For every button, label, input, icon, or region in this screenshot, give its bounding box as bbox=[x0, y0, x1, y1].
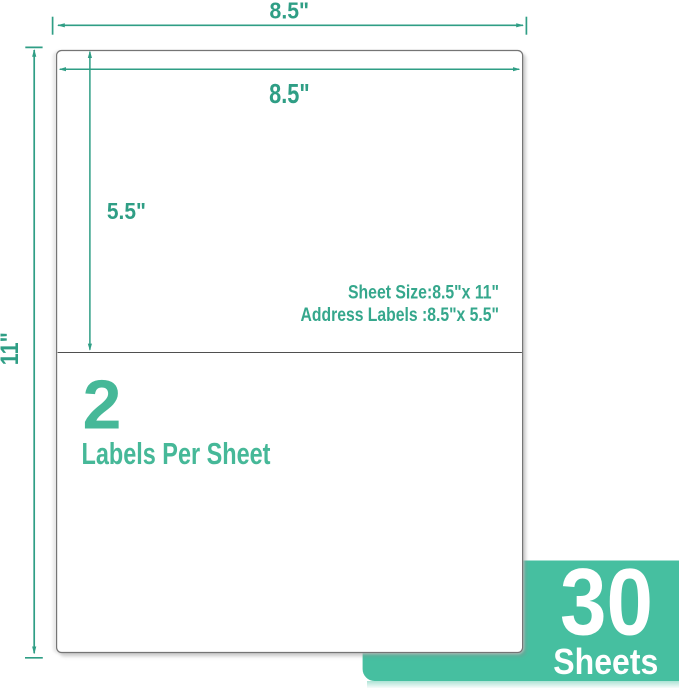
svg-text:8.5": 8.5" bbox=[270, 0, 310, 23]
svg-text:Sheet Size:8.5"x 11": Sheet Size:8.5"x 11" bbox=[348, 282, 499, 304]
svg-text:8.5": 8.5" bbox=[269, 78, 310, 109]
svg-text:Address Labels :8.5"x 5.5": Address Labels :8.5"x 5.5" bbox=[301, 304, 500, 326]
svg-text:5.5": 5.5" bbox=[107, 198, 146, 224]
svg-text:30: 30 bbox=[560, 549, 653, 655]
svg-text:Labels Per Sheet: Labels Per Sheet bbox=[82, 436, 271, 471]
svg-text:2: 2 bbox=[83, 366, 122, 444]
svg-text:11": 11" bbox=[0, 332, 24, 365]
svg-text:Sheets: Sheets bbox=[553, 642, 658, 682]
